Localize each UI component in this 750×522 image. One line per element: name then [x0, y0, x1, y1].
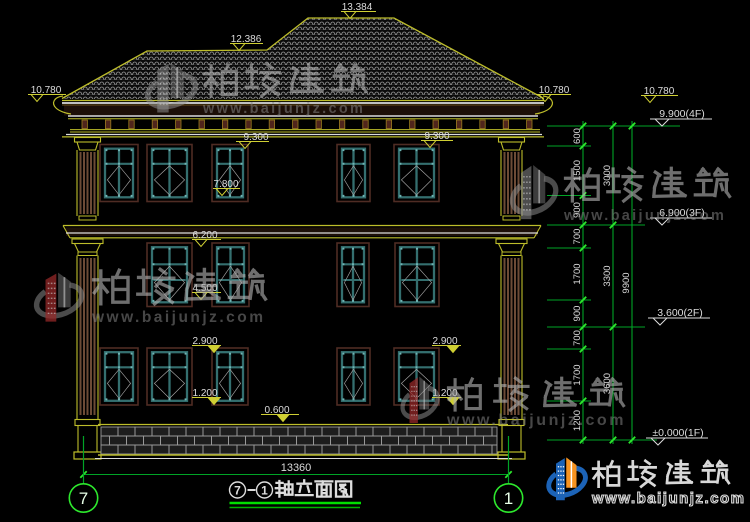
svg-text:9.900(4F): 9.900(4F)	[659, 108, 705, 120]
svg-text:600: 600	[572, 128, 583, 144]
svg-text:13360: 13360	[281, 462, 312, 474]
svg-text:700: 700	[572, 229, 583, 245]
svg-text:700: 700	[572, 330, 583, 346]
svg-text:±0.000(1F): ±0.000(1F)	[652, 427, 703, 439]
svg-text:www.baijunjz.com: www.baijunjz.com	[591, 490, 745, 507]
svg-text:900: 900	[572, 306, 583, 322]
svg-text:1700: 1700	[572, 364, 583, 385]
svg-text:7: 7	[234, 484, 241, 498]
svg-text:1: 1	[504, 489, 513, 508]
svg-text:www.baijunjz.com: www.baijunjz.com	[202, 101, 365, 117]
svg-text:1700: 1700	[572, 263, 583, 284]
svg-text:7: 7	[79, 489, 88, 508]
svg-text:www.baijunjz.com: www.baijunjz.com	[563, 208, 726, 224]
svg-text:9900: 9900	[621, 272, 632, 293]
svg-text:1: 1	[261, 484, 268, 498]
svg-text:3.600(2F): 3.600(2F)	[657, 307, 703, 319]
svg-text:3300: 3300	[602, 265, 613, 286]
svg-text:www.baijunjz.com: www.baijunjz.com	[91, 309, 265, 326]
svg-text:www.baijunjz.com: www.baijunjz.com	[446, 412, 626, 429]
